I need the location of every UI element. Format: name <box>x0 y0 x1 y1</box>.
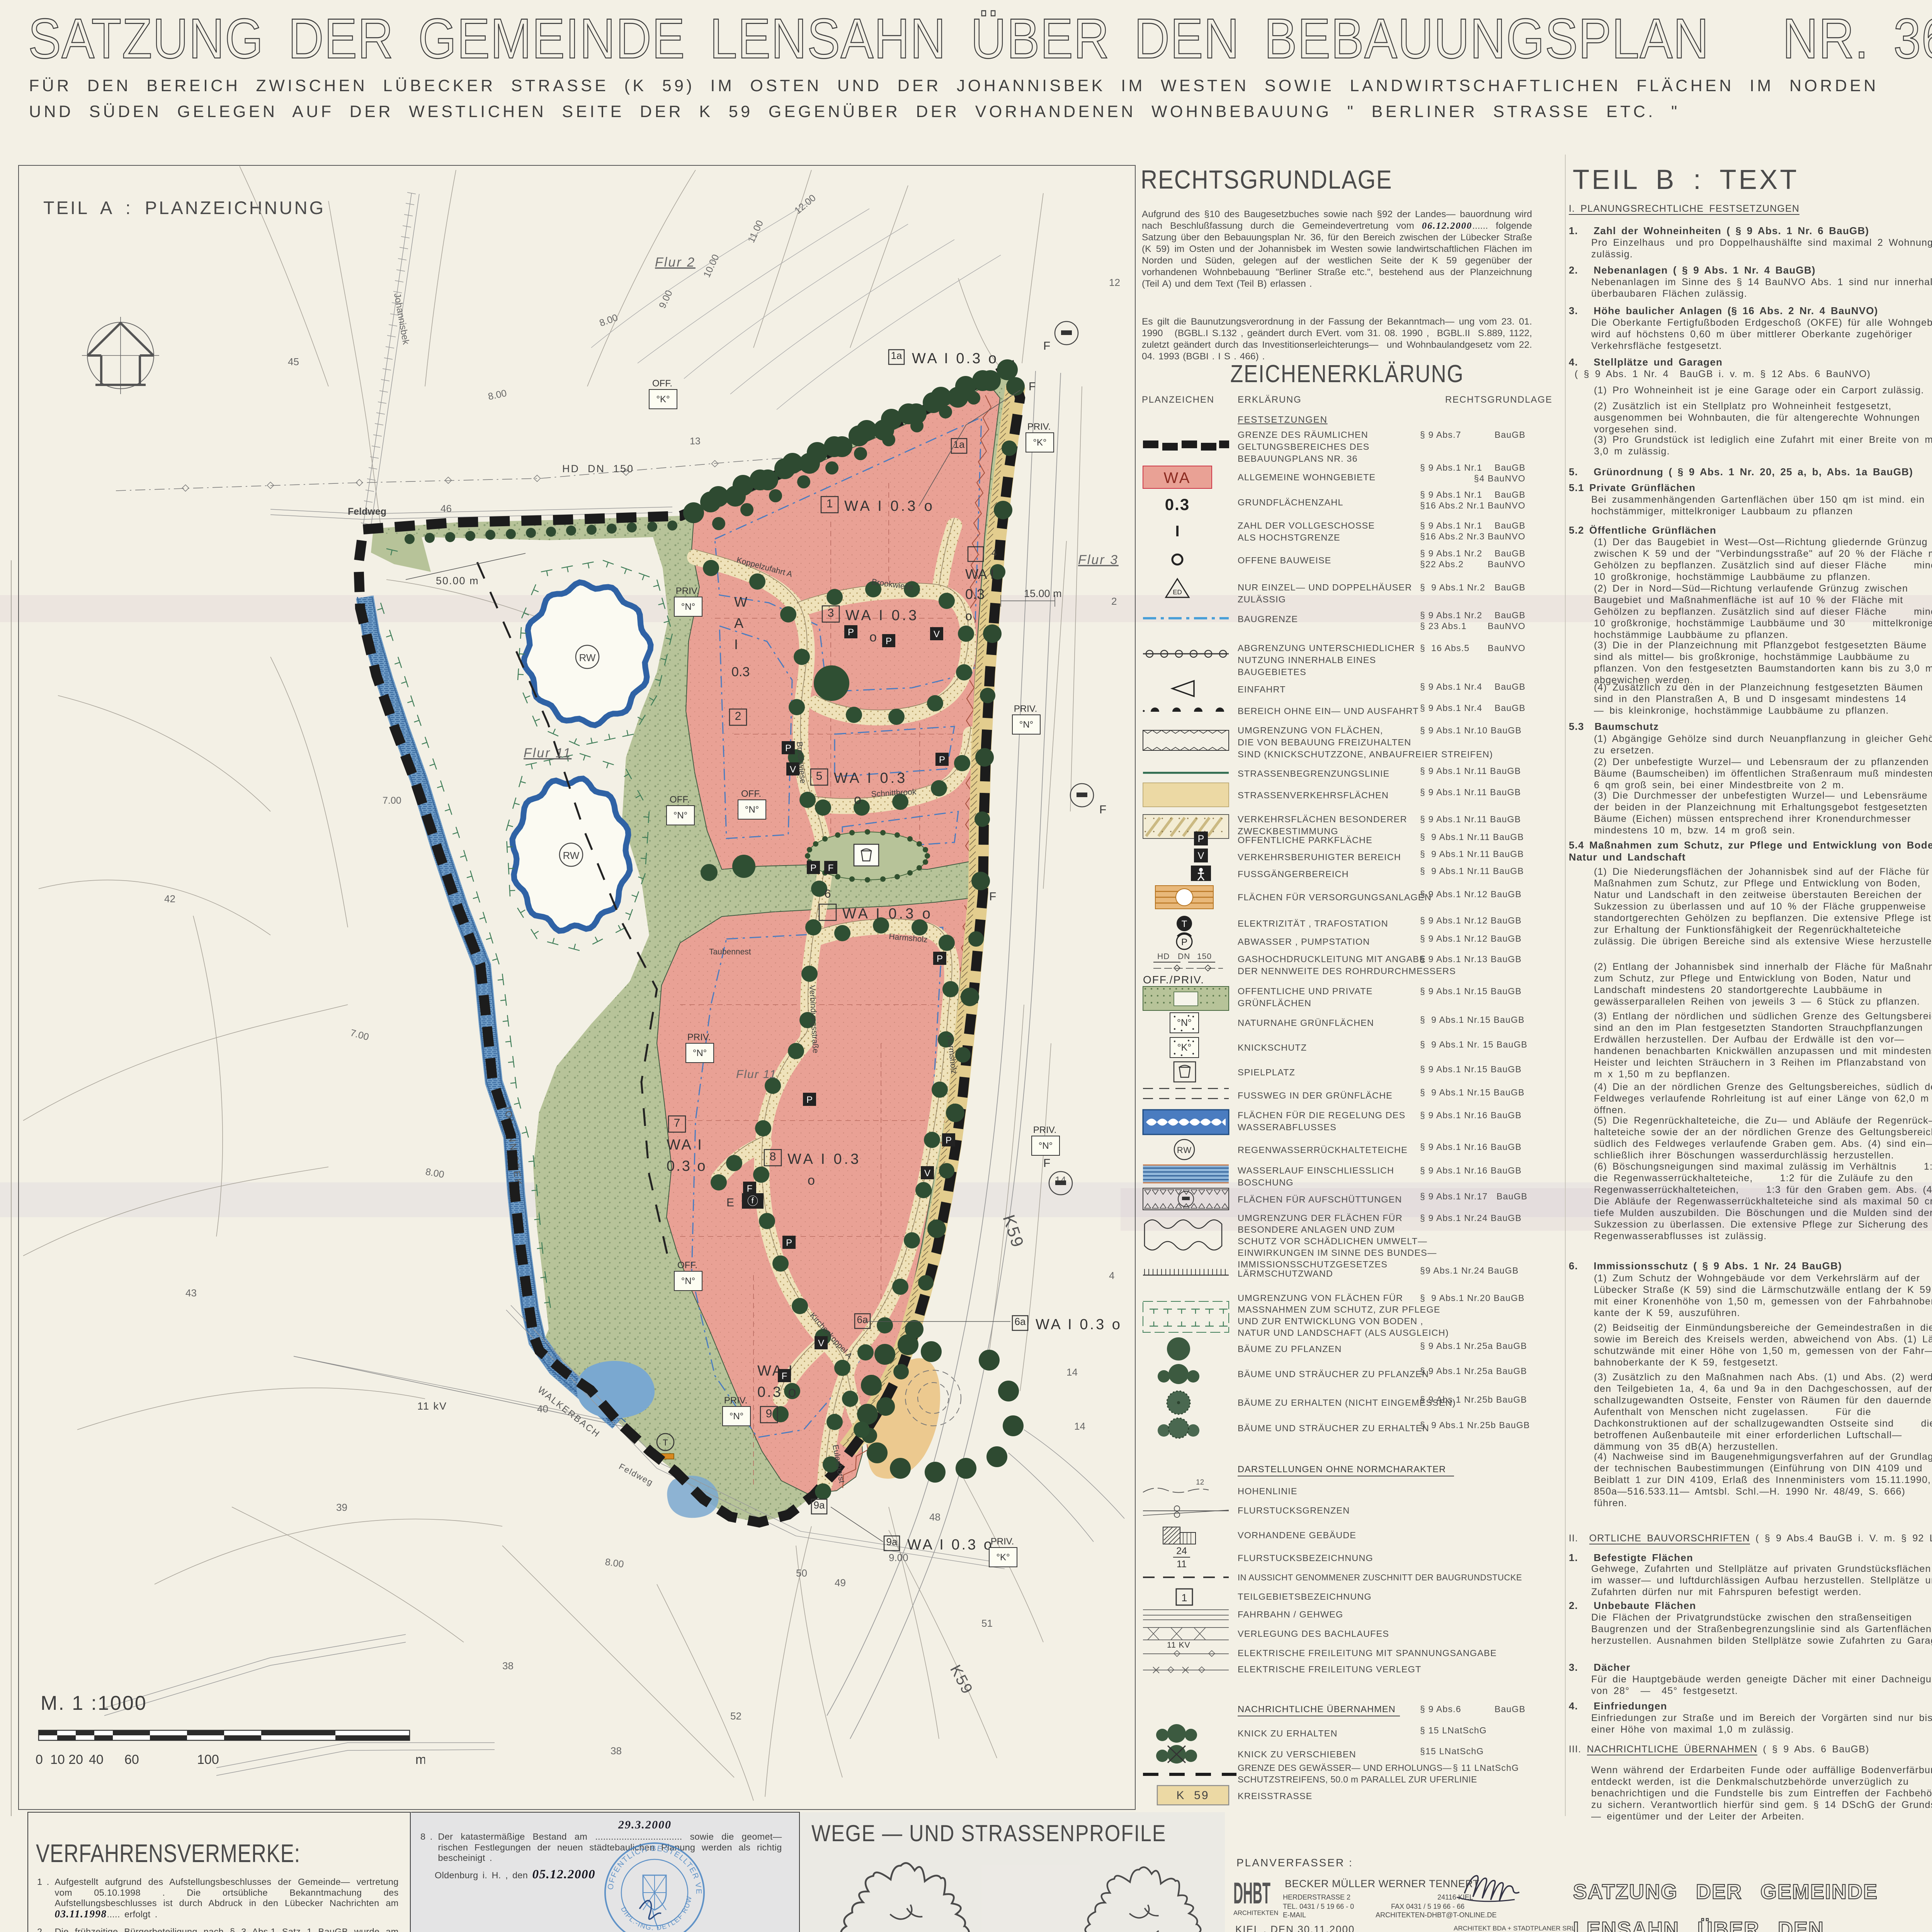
svg-text:UND ZUR ENTWICKLUNG VON BODEN: UND ZUR ENTWICKLUNG VON BODEN , <box>1238 1316 1423 1326</box>
svg-text:§ 9 Abs.1 Nr.4: § 9 Abs.1 Nr.4 <box>1420 703 1482 713</box>
svg-text:§ 16 Abs.5: § 16 Abs.5 <box>1420 643 1469 653</box>
svg-text:HD: HD <box>1157 952 1170 961</box>
svg-text:P: P <box>786 1238 792 1248</box>
svg-text:V: V <box>818 1338 824 1349</box>
svg-text:WASSERLAUF EINSCHLIESSLICH: WASSERLAUF EINSCHLIESSLICH <box>1238 1165 1394 1175</box>
svg-text:T: T <box>1182 919 1187 929</box>
svg-text:3: 3 <box>828 607 834 619</box>
svg-text:K59: K59 <box>999 1213 1027 1250</box>
svg-text:§ 9 Abs.1 Nr.11 BauGB: § 9 Abs.1 Nr.11 BauGB <box>1420 832 1524 842</box>
svg-text:TEILGEBIETSBEZEICHNUNG: TEILGEBIETSBEZEICHNUNG <box>1238 1592 1372 1602</box>
svg-text:°N°: °N° <box>673 810 688 821</box>
svg-text:KNICK ZU VERSCHIEBEN: KNICK ZU VERSCHIEBEN <box>1238 1749 1356 1759</box>
svg-text:DN: DN <box>1178 952 1190 961</box>
svg-text:RW: RW <box>1177 1145 1192 1155</box>
svg-text:§ 9 Abs.1 Nr.11 BauGB: § 9 Abs.1 Nr.11 BauGB <box>1420 766 1521 776</box>
svg-text:§ 9 Abs.1 Nr.15 BauGB: § 9 Abs.1 Nr.15 BauGB <box>1420 1087 1525 1097</box>
svg-text:39: 39 <box>336 1502 347 1513</box>
svg-text:V: V <box>790 764 796 775</box>
svg-text:ABWASSER , PUMPSTATION: ABWASSER , PUMPSTATION <box>1238 937 1370 947</box>
svg-text:§ 23 Abs.1: § 23 Abs.1 <box>1420 621 1467 631</box>
svg-text:Feldweg: Feldweg <box>617 1461 655 1488</box>
svg-text:43: 43 <box>185 1287 197 1299</box>
svg-text:§ 9 Abs.1 Nr.15 BauGB: § 9 Abs.1 Nr.15 BauGB <box>1420 986 1522 996</box>
svg-text:8.00: 8.00 <box>604 1556 624 1570</box>
svg-text:EINFAHRT: EINFAHRT <box>1238 684 1286 694</box>
svg-text:BauGB: BauGB <box>1495 703 1526 713</box>
svg-text:§ 9 Abs.1 Nr.2: § 9 Abs.1 Nr.2 <box>1420 548 1482 558</box>
svg-text:§ 9 Abs.7: § 9 Abs.7 <box>1420 430 1461 440</box>
svg-text:HERDERSTRASSE 2: HERDERSTRASSE 2 <box>1283 1893 1350 1901</box>
svg-text:°N°: °N° <box>730 1411 744 1422</box>
svg-text:WA I 0.3 o: WA I 0.3 o <box>842 906 933 922</box>
svg-text:Johannisbek: Johannisbek <box>392 292 411 345</box>
svg-text:EINWIRKUNGEN IM SINNE DES BUND: EINWIRKUNGEN IM SINNE DES BUNDES— <box>1238 1248 1437 1258</box>
svg-text:KREISSTRASSE: KREISSTRASSE <box>1238 1791 1312 1801</box>
svg-text:Flur 11: Flur 11 <box>736 1068 777 1081</box>
svg-text:OFF.: OFF. <box>741 789 761 799</box>
svg-text:IMMISSIONSSCHUTZGESETZES: IMMISSIONSSCHUTZGESETZES <box>1238 1259 1388 1269</box>
svg-text:1: 1 <box>827 497 833 510</box>
svg-text:38: 38 <box>611 1745 622 1757</box>
svg-text:§ 9 Abs.1 Nr.2: § 9 Abs.1 Nr.2 <box>1420 582 1485 592</box>
svg-text:60: 60 <box>124 1752 139 1767</box>
svg-text:BÄUME UND STRÄUCHER ZU PFLANZE: BÄUME UND STRÄUCHER ZU PFLANZEN <box>1238 1369 1429 1379</box>
svg-text:ELEKTRISCHE FREILEITUNG VERLEG: ELEKTRISCHE FREILEITUNG VERLEGT <box>1238 1664 1421 1674</box>
svg-text:Feldweg: Feldweg <box>348 506 386 517</box>
svg-text:6a: 6a <box>1015 1316 1026 1327</box>
svg-text:8.00: 8.00 <box>487 388 507 402</box>
svg-text:9.00: 9.00 <box>889 1552 908 1563</box>
svg-text:§ 9 Abs.1 Nr.12 BauGB: § 9 Abs.1 Nr.12 BauGB <box>1420 915 1522 925</box>
svg-text:NUTZUNG INNERHALB EINES: NUTZUNG INNERHALB EINES <box>1238 655 1376 665</box>
svg-text:ED: ED <box>1173 588 1182 596</box>
svg-text:51: 51 <box>981 1617 993 1629</box>
svg-text:BÄUME UND STRÄUCHER ZU ERHALTE: BÄUME UND STRÄUCHER ZU ERHALTEN <box>1238 1423 1429 1433</box>
svg-text:§ 9 Abs.1 Nr.1: § 9 Abs.1 Nr.1 <box>1420 490 1482 500</box>
svg-text:12: 12 <box>1109 277 1120 288</box>
svg-text:§ 9 Abs.1 Nr.20 BauGB: § 9 Abs.1 Nr.20 BauGB <box>1420 1293 1525 1303</box>
svg-text:§ 9 Abs.1 Nr.25a BauGB: § 9 Abs.1 Nr.25a BauGB <box>1420 1366 1527 1376</box>
svg-text:RW: RW <box>563 850 580 861</box>
svg-text:6a: 6a <box>857 1314 868 1325</box>
svg-text:OFFENE BAUWEISE: OFFENE BAUWEISE <box>1238 555 1331 565</box>
svg-text:0: 0 <box>36 1752 43 1767</box>
svg-text:§16 Abs.2 Nr.3: §16 Abs.2 Nr.3 <box>1420 531 1485 541</box>
svg-text:Flur 11: Flur 11 <box>524 746 571 760</box>
svg-text:§ 9 Abs.1 Nr.11 BauGB: § 9 Abs.1 Nr.11 BauGB <box>1420 866 1524 876</box>
svg-text:ⓕ: ⓕ <box>747 1195 758 1207</box>
svg-text:BEREICH OHNE EIN— UND AUSFAHRT: BEREICH OHNE EIN— UND AUSFAHRT <box>1238 706 1419 716</box>
svg-text:SCHUTZSTREIFENS, 50.0 m PARALL: SCHUTZSTREIFENS, 50.0 m PARALLEL ZUR UFE… <box>1238 1774 1477 1784</box>
svg-text:OFF.: OFF. <box>677 1260 697 1270</box>
svg-text:ELEKTRIZITÄT , TRAFOSTATION: ELEKTRIZITÄT , TRAFOSTATION <box>1238 918 1388 929</box>
svg-text:PLANVERFASSER :: PLANVERFASSER : <box>1236 1857 1353 1869</box>
svg-text:ZULÄSSIG: ZULÄSSIG <box>1238 594 1286 604</box>
svg-text:WA I 0.3: WA I 0.3 <box>834 770 907 786</box>
svg-text:BauGB: BauGB <box>1495 682 1526 692</box>
svg-text:WA I 0.3 o: WA I 0.3 o <box>844 498 935 514</box>
svg-text:FLURSTUCKSBEZEICHNUNG: FLURSTUCKSBEZEICHNUNG <box>1238 1553 1373 1563</box>
svg-text:§ 9 Abs.1 Nr.13 BauGB: § 9 Abs.1 Nr.13 BauGB <box>1420 954 1522 964</box>
svg-text:FAX 0431 / 5 19 66 - 66: FAX 0431 / 5 19 66 - 66 <box>1391 1903 1464 1910</box>
svg-text:F: F <box>989 890 996 903</box>
svg-text:REGENWASSERRÜCKHALTETEICHE: REGENWASSERRÜCKHALTETEICHE <box>1238 1145 1408 1155</box>
svg-text:0.3: 0.3 <box>1165 495 1190 514</box>
svg-text:11 KV: 11 KV <box>1167 1641 1190 1650</box>
svg-text:GASHOCHDRUCKLEITUNG MIT ANGABE: GASHOCHDRUCKLEITUNG MIT ANGABE <box>1238 954 1426 964</box>
svg-text:BauGB: BauGB <box>1495 582 1526 592</box>
svg-text:BauGB: BauGB <box>1495 1704 1526 1714</box>
svg-text:°N°: °N° <box>1177 1017 1192 1028</box>
svg-text:14: 14 <box>1066 1366 1078 1378</box>
svg-text:ALS HOCHSTGRENZE: ALS HOCHSTGRENZE <box>1238 532 1340 543</box>
svg-text:BauNVO: BauNVO <box>1488 531 1526 541</box>
svg-text:BauNVO: BauNVO <box>1488 643 1526 653</box>
svg-text:K 59: K 59 <box>1176 1789 1209 1802</box>
svg-text:BauGB: BauGB <box>1495 463 1526 473</box>
svg-text:F: F <box>1043 1157 1050 1170</box>
svg-text:E: E <box>726 1196 734 1209</box>
svg-text:2: 2 <box>735 710 742 723</box>
svg-text:DIE VON BEBAUUNG FREIZUHALTEN: DIE VON BEBAUUNG FREIZUHALTEN <box>1238 737 1411 747</box>
svg-text:§ 9 Abs.1 Nr. 15 BauGB: § 9 Abs.1 Nr. 15 BauGB <box>1420 1039 1527 1049</box>
svg-text:UMGRENZUNG VON FLÄCHEN,: UMGRENZUNG VON FLÄCHEN, <box>1238 725 1383 735</box>
svg-text:7.00: 7.00 <box>383 795 401 806</box>
svg-text:§ 9 Abs.1 Nr.1: § 9 Abs.1 Nr.1 <box>1420 520 1482 531</box>
svg-text:WA: WA <box>1164 469 1191 486</box>
svg-text:BECKER MÜLLER WERNER TENNER: BECKER MÜLLER WERNER TENNERT <box>1285 1878 1480 1889</box>
svg-text:7: 7 <box>674 1117 680 1129</box>
svg-text:§ 9 Abs.1 Nr.17 BauGB: § 9 Abs.1 Nr.17 BauGB <box>1420 1191 1527 1201</box>
svg-text:BAUGRENZE: BAUGRENZE <box>1238 614 1298 624</box>
svg-text:°N°: °N° <box>681 602 696 612</box>
svg-text:P: P <box>937 954 943 964</box>
svg-text:§ 9 Abs.1 Nr.24 BauGB: § 9 Abs.1 Nr.24 BauGB <box>1420 1213 1522 1223</box>
svg-text:40: 40 <box>537 1403 548 1415</box>
svg-text:VERKEHRSFLÄCHEN BESONDERER: VERKEHRSFLÄCHEN BESONDERER <box>1238 814 1407 824</box>
svg-text:§16 Abs.2 Nr.1: §16 Abs.2 Nr.1 <box>1420 500 1485 510</box>
svg-text:BAUGEBIETES: BAUGEBIETES <box>1238 667 1306 677</box>
svg-text:E-MAIL: E-MAIL <box>1283 1911 1306 1919</box>
svg-text:P: P <box>1181 937 1187 947</box>
svg-text:12.00: 12.00 <box>793 192 818 216</box>
svg-text:0.3: 0.3 <box>731 665 750 679</box>
svg-text:PRIV.: PRIV. <box>1014 704 1037 714</box>
svg-text:ARCHITEKTEN: ARCHITEKTEN <box>1233 1910 1278 1917</box>
svg-text:2: 2 <box>1111 595 1117 607</box>
svg-text:11: 11 <box>1177 1559 1187 1570</box>
svg-text:ZAHL DER VOLLGESCHOSSE: ZAHL DER VOLLGESCHOSSE <box>1238 520 1375 531</box>
svg-text:14: 14 <box>1074 1420 1085 1432</box>
svg-text:PRIV.: PRIV. <box>991 1536 1014 1547</box>
svg-text:BauGB: BauGB <box>1495 548 1526 558</box>
svg-text:BauGB: BauGB <box>1495 520 1526 531</box>
svg-text:o: o <box>854 792 864 807</box>
svg-text:GRENZE DES GEWÄSSER— UND ERHOL: GRENZE DES GEWÄSSER— UND ERHOLUNGS— <box>1238 1763 1452 1773</box>
svg-text:§ 9 Abs.1 Nr.1: § 9 Abs.1 Nr.1 <box>1420 463 1482 473</box>
svg-text:§ 9 Abs.1 Nr.11 BauGB: § 9 Abs.1 Nr.11 BauGB <box>1420 849 1524 859</box>
svg-text:§ 9 Abs.1 Nr.16 BauGB: § 9 Abs.1 Nr.16 BauGB <box>1420 1110 1522 1120</box>
svg-text:WA I 0.3 o: WA I 0.3 o <box>912 350 998 367</box>
svg-text:STRASSENBEGRENZUNGSLINIE: STRASSENBEGRENZUNGSLINIE <box>1238 769 1389 779</box>
svg-text:KNICKSCHUTZ: KNICKSCHUTZ <box>1238 1043 1307 1053</box>
svg-text:PRIV.: PRIV. <box>1033 1125 1056 1135</box>
svg-text:OFFENTLICHE PARKFLÄCHE: OFFENTLICHE PARKFLÄCHE <box>1238 835 1372 845</box>
svg-text:§ 11 LNatSchG: § 11 LNatSchG <box>1453 1763 1519 1773</box>
svg-text:9.00: 9.00 <box>657 289 675 310</box>
svg-text:§ 15 LNatSchG: § 15 LNatSchG <box>1420 1725 1487 1735</box>
svg-text:P: P <box>806 1095 813 1105</box>
svg-text:SIND (KNICKSCHUTZZONE, ANBAUFR: SIND (KNICKSCHUTZZONE, ANBAUFREIER STREI… <box>1238 749 1493 759</box>
svg-text:F: F <box>828 863 834 873</box>
svg-text:WA I: WA I <box>667 1137 703 1153</box>
svg-text:§ 9 Abs.1 Nr.25b BauGB: § 9 Abs.1 Nr.25b BauGB <box>1420 1420 1530 1430</box>
svg-text:4: 4 <box>1109 1270 1114 1281</box>
svg-text:40: 40 <box>89 1752 104 1767</box>
svg-text:T: T <box>663 1438 668 1447</box>
svg-text:§4 BauNVO: §4 BauNVO <box>1474 473 1526 483</box>
svg-text:HD DN 150: HD DN 150 <box>562 463 634 474</box>
svg-text:BOSCHUNG: BOSCHUNG <box>1238 1177 1294 1187</box>
svg-text:NUR EINZEL— UND DOPPELHÄUSER: NUR EINZEL— UND DOPPELHÄUSER <box>1238 582 1412 592</box>
svg-text:ALLGEMEINE WOHNGEBIETE: ALLGEMEINE WOHNGEBIETE <box>1238 472 1376 482</box>
svg-text:§ 9 Abs.1 Nr.16 BauGB: § 9 Abs.1 Nr.16 BauGB <box>1420 1165 1522 1175</box>
svg-text:IN AUSSICHT GENOMMENER ZUSCHNI: IN AUSSICHT GENOMMENER ZUSCHNITT DER BAU… <box>1238 1573 1522 1582</box>
svg-text:VORHANDENE GEBÄUDE: VORHANDENE GEBÄUDE <box>1238 1530 1356 1540</box>
svg-text:42: 42 <box>164 893 175 905</box>
svg-text:§ 9 Abs.1 Nr.12 BauGB: § 9 Abs.1 Nr.12 BauGB <box>1420 889 1522 899</box>
svg-text:1: 1 <box>1181 1592 1187 1604</box>
svg-text:FUSSGÄNGERBEREICH: FUSSGÄNGERBEREICH <box>1238 869 1349 879</box>
svg-text:V: V <box>924 1168 930 1179</box>
svg-text:NATURNAHE GRÜNFLÄCHEN: NATURNAHE GRÜNFLÄCHEN <box>1238 1018 1374 1028</box>
svg-text:m: m <box>415 1752 425 1767</box>
svg-text:§ 9 Abs.1 Nr.25b BauGB: § 9 Abs.1 Nr.25b BauGB <box>1420 1395 1527 1405</box>
svg-text:SCHUTZ VOR SCHÄDLICHEN UMWELT—: SCHUTZ VOR SCHÄDLICHEN UMWELT— <box>1238 1236 1427 1246</box>
svg-text:7.00: 7.00 <box>349 1027 370 1043</box>
svg-text:1a: 1a <box>891 350 902 361</box>
svg-text:WA I: WA I <box>965 566 994 582</box>
svg-text:V: V <box>934 629 940 639</box>
svg-text:BauNVO: BauNVO <box>1488 500 1526 510</box>
svg-text:ELEKTRISCHE FREILEITUNG MIT SP: ELEKTRISCHE FREILEITUNG MIT SPANNUNGSANG… <box>1238 1648 1497 1658</box>
svg-text:STRASSENVERKEHRSFLÄCHEN: STRASSENVERKEHRSFLÄCHEN <box>1238 790 1389 800</box>
svg-text:UMGRENZUNG VON FLÄCHEN FÜR: UMGRENZUNG VON FLÄCHEN FÜR <box>1238 1293 1403 1303</box>
svg-text:§9 Abs.1 Nr.24 BauGB: §9 Abs.1 Nr.24 BauGB <box>1420 1265 1519 1276</box>
svg-text:P: P <box>848 627 854 638</box>
svg-text:PRIV.: PRIV. <box>687 1032 711 1043</box>
svg-text:°N°: °N° <box>693 1048 707 1058</box>
svg-text:°N°: °N° <box>681 1276 696 1286</box>
svg-text:5: 5 <box>816 770 823 782</box>
svg-text:§ 9 Abs.6: § 9 Abs.6 <box>1420 1704 1461 1714</box>
svg-text:13: 13 <box>690 436 701 447</box>
svg-text:P: P <box>886 636 892 646</box>
svg-text:SPIELPLATZ: SPIELPLATZ <box>1238 1067 1295 1077</box>
svg-text:DARSTELLUNGEN OHNE NORMCHARAKT: DARSTELLUNGEN OHNE NORMCHARAKTER <box>1238 1464 1446 1474</box>
svg-text:15.00 m: 15.00 m <box>1024 588 1062 599</box>
svg-text:ARCHITEKT BDA + STADTPLANER SR: ARCHITEKT BDA + STADTPLANER SRL <box>1454 1925 1575 1932</box>
svg-text:6: 6 <box>825 888 831 900</box>
svg-text:OFFENTLICHE UND PRIVATE: OFFENTLICHE UND PRIVATE <box>1238 986 1373 996</box>
svg-text:9a: 9a <box>886 1536 898 1548</box>
svg-text:Flur 2: Flur 2 <box>655 255 696 270</box>
svg-text:§ 9 Abs.1 Nr.11 BauGB: § 9 Abs.1 Nr.11 BauGB <box>1420 814 1521 824</box>
svg-text:PRIV.: PRIV. <box>724 1395 747 1406</box>
svg-text:BÄUME ZU PFLANZEN: BÄUME ZU PFLANZEN <box>1238 1344 1342 1354</box>
svg-text:FLÄCHEN FÜR AUFSCHÜTTUNGEN: FLÄCHEN FÜR AUFSCHÜTTUNGEN <box>1238 1194 1402 1204</box>
svg-text:°N°: °N° <box>745 804 759 815</box>
svg-text:GRÜNFLÄCHEN: GRÜNFLÄCHEN <box>1238 998 1311 1008</box>
svg-text:FLÄCHEN FÜR DIE REGELUNG DES: FLÄCHEN FÜR DIE REGELUNG DES <box>1238 1110 1405 1120</box>
svg-text:Flur 3: Flur 3 <box>1078 553 1119 567</box>
svg-text:P: P <box>946 1135 952 1146</box>
svg-text:24: 24 <box>1176 1546 1187 1556</box>
svg-text:P: P <box>939 755 945 765</box>
svg-text:OFF./PRIV.: OFF./PRIV. <box>1143 974 1204 986</box>
svg-text:§22 Abs.2: §22 Abs.2 <box>1420 559 1464 569</box>
svg-text:F: F <box>747 1184 753 1194</box>
svg-text:Taubennest: Taubennest <box>709 947 751 956</box>
svg-text:°N°: °N° <box>1019 719 1034 730</box>
svg-text:WA I 0.3: WA I 0.3 <box>787 1151 861 1167</box>
svg-text:38: 38 <box>502 1660 514 1672</box>
svg-text:150: 150 <box>1197 952 1212 961</box>
svg-text:VERKEHRSBERUHIGTER BEREICH: VERKEHRSBERUHIGTER BEREICH <box>1238 852 1401 862</box>
svg-text:P: P <box>810 863 816 873</box>
svg-text:F: F <box>1043 340 1050 352</box>
svg-text:§ 9 Abs.1 Nr.15 BauGB: § 9 Abs.1 Nr.15 BauGB <box>1420 1015 1525 1025</box>
svg-text:ABGRENZUNG UNTERSCHIEDLICHER: ABGRENZUNG UNTERSCHIEDLICHER <box>1238 643 1415 653</box>
svg-text:o: o <box>869 630 880 645</box>
svg-text:§ 9 Abs.1 Nr.2: § 9 Abs.1 Nr.2 <box>1420 610 1482 620</box>
svg-text:1a: 1a <box>954 439 965 450</box>
svg-text:P: P <box>785 743 791 753</box>
svg-text:0.3 o: 0.3 o <box>757 1384 798 1400</box>
svg-text:°K°: °K° <box>1177 1042 1192 1053</box>
svg-text:FLURSTUCKSGRENZEN: FLURSTUCKSGRENZEN <box>1238 1505 1350 1515</box>
svg-text:§ 9 Abs.1 Nr.10 BauGB: § 9 Abs.1 Nr.10 BauGB <box>1420 725 1522 735</box>
svg-text:§ 9 Abs.1 Nr.15 BauGB: § 9 Abs.1 Nr.15 BauGB <box>1420 1064 1522 1074</box>
svg-text:§ 9 Abs.1 Nr.16 BauGB: § 9 Abs.1 Nr.16 BauGB <box>1420 1142 1522 1152</box>
svg-text:F: F <box>782 1371 787 1381</box>
svg-text:NACHRICHTLICHE ÜBERNAHMEN: NACHRICHTLICHE ÜBERNAHMEN <box>1238 1704 1396 1714</box>
svg-text:8.00: 8.00 <box>598 312 619 329</box>
svg-text:VERLEGUNG DES BACHLAUFES: VERLEGUNG DES BACHLAUFES <box>1238 1629 1389 1639</box>
svg-text:§ 9 Abs.1 Nr.11 BauGB: § 9 Abs.1 Nr.11 BauGB <box>1420 787 1521 797</box>
svg-text:DER NENNWEITE DES ROHRDURCHMES: DER NENNWEITE DES ROHRDURCHMESSERS <box>1238 966 1456 976</box>
svg-text:UMGRENZUNG DER FLÄCHEN FÜR: UMGRENZUNG DER FLÄCHEN FÜR <box>1238 1213 1403 1223</box>
svg-text:V: V <box>1198 850 1204 861</box>
svg-text:KNICK ZU ERHALTEN: KNICK ZU ERHALTEN <box>1238 1728 1338 1738</box>
svg-text:9a: 9a <box>814 1499 825 1511</box>
svg-text:BEBAUUNGPLANS NR. 36: BEBAUUNGPLANS NR. 36 <box>1238 454 1358 464</box>
svg-text:BESONDERE ANLAGEN UND ZUM: BESONDERE ANLAGEN UND ZUM <box>1238 1225 1395 1235</box>
svg-text:49: 49 <box>835 1577 846 1588</box>
svg-text:FLÄCHEN FÜR VERSORGUNGSANLAGEN: FLÄCHEN FÜR VERSORGUNGSANLAGEN <box>1238 892 1432 902</box>
svg-text:W: W <box>734 594 747 610</box>
svg-text:I: I <box>734 636 738 652</box>
svg-text:TEL. 0431 / 5 19 66 - 0: TEL. 0431 / 5 19 66 - 0 <box>1283 1903 1354 1910</box>
svg-text:o: o <box>965 609 972 623</box>
svg-text:FAHRBAHN / GEHWEG: FAHRBAHN / GEHWEG <box>1238 1609 1343 1619</box>
svg-text:48: 48 <box>929 1511 940 1523</box>
svg-text:F: F <box>1029 380 1036 393</box>
svg-text:OFF.: OFF. <box>670 794 690 805</box>
svg-text:°N°: °N° <box>1039 1141 1053 1151</box>
svg-text:HOHENLINIE: HOHENLINIE <box>1238 1486 1298 1496</box>
svg-text:KIEL , DEN 30.11.2000: KIEL , DEN 30.11.2000 <box>1235 1923 1355 1932</box>
svg-text:FUSSWEG IN DER GRÜNFLÄCHE: FUSSWEG IN DER GRÜNFLÄCHE <box>1238 1090 1393 1100</box>
svg-text:o: o <box>808 1173 818 1188</box>
svg-text:ARCHITEKTEN-DHBT@T-ONLINE.DE: ARCHITEKTEN-DHBT@T-ONLINE.DE <box>1376 1911 1497 1919</box>
svg-text:§ 9 Abs.1 Nr.4: § 9 Abs.1 Nr.4 <box>1420 682 1482 692</box>
svg-text:100: 100 <box>197 1752 219 1767</box>
svg-text:PRIV.: PRIV. <box>676 586 699 596</box>
svg-text:10.00: 10.00 <box>701 253 721 279</box>
svg-text:4: 4 <box>992 547 997 558</box>
svg-text:A: A <box>734 615 743 631</box>
svg-text:BauNVO: BauNVO <box>1488 621 1526 631</box>
svg-text:K59: K59 <box>947 1662 976 1697</box>
svg-text:50.00 m: 50.00 m <box>436 575 479 587</box>
svg-text:WA I 0.3 o: WA I 0.3 o <box>1036 1316 1122 1333</box>
svg-text:RW: RW <box>579 652 596 663</box>
svg-text:11.00: 11.00 <box>746 219 765 245</box>
svg-text:BauNVO: BauNVO <box>1488 559 1526 569</box>
svg-text:§ 9 Abs.1 Nr.25a BauGB: § 9 Abs.1 Nr.25a BauGB <box>1420 1341 1527 1351</box>
svg-text:MASSNAHMEN ZUM SCHUTZ, ZUR PFL: MASSNAHMEN ZUM SCHUTZ, ZUR PFLEGE <box>1238 1304 1440 1315</box>
svg-text:DHBT: DHBT <box>1233 1876 1270 1910</box>
svg-text:NATUR UND LANDSCHAFT (ALS AUSG: NATUR UND LANDSCHAFT (ALS AUSGLEICH) <box>1238 1328 1449 1338</box>
svg-text:°K°: °K° <box>1033 437 1046 448</box>
svg-text:10 20: 10 20 <box>50 1752 83 1767</box>
svg-text:LÄRMSCHUTZWAND: LÄRMSCHUTZWAND <box>1238 1269 1333 1279</box>
svg-text:GRUNDFLÄCHENZAHL: GRUNDFLÄCHENZAHL <box>1238 497 1344 507</box>
svg-text:50: 50 <box>796 1567 807 1579</box>
svg-text:BauGB: BauGB <box>1495 430 1526 440</box>
svg-text:46: 46 <box>440 503 452 514</box>
svg-text:WA I 0.3 o: WA I 0.3 o <box>907 1537 994 1553</box>
svg-text:GELTUNGSBEREICHES DES: GELTUNGSBEREICHES DES <box>1238 442 1369 452</box>
svg-text:I: I <box>1175 523 1179 540</box>
svg-text:0.3: 0.3 <box>965 586 985 602</box>
svg-text:BauGB: BauGB <box>1495 610 1526 620</box>
svg-text:GRENZE DES RÄUMLICHEN: GRENZE DES RÄUMLICHEN <box>1238 430 1368 440</box>
svg-text:WA I 0.3: WA I 0.3 <box>845 607 919 624</box>
svg-text:PRIV.: PRIV. <box>1027 422 1051 432</box>
svg-text:BauGB: BauGB <box>1495 490 1526 500</box>
svg-text:9: 9 <box>766 1407 772 1420</box>
svg-text:§ 9 Abs.1 Nr.12 BauGB: § 9 Abs.1 Nr.12 BauGB <box>1420 934 1522 944</box>
svg-text:8: 8 <box>770 1150 776 1163</box>
svg-text:°K°: °K° <box>656 394 670 405</box>
svg-text:0.3 o: 0.3 o <box>667 1158 707 1174</box>
svg-text:11 kV: 11 kV <box>417 1400 447 1412</box>
svg-text:P: P <box>1198 833 1204 844</box>
svg-text:WASSERABFLUSSES: WASSERABFLUSSES <box>1238 1122 1337 1132</box>
svg-text:§15 LNatSchG: §15 LNatSchG <box>1420 1746 1484 1756</box>
svg-text:F: F <box>1099 803 1106 816</box>
svg-text:12: 12 <box>1196 1478 1204 1486</box>
svg-text:OFF.: OFF. <box>652 378 672 389</box>
svg-text:45: 45 <box>288 356 299 367</box>
svg-text:52: 52 <box>730 1710 742 1722</box>
svg-text:8.00: 8.00 <box>425 1166 445 1180</box>
svg-text:°K°: °K° <box>996 1552 1010 1563</box>
